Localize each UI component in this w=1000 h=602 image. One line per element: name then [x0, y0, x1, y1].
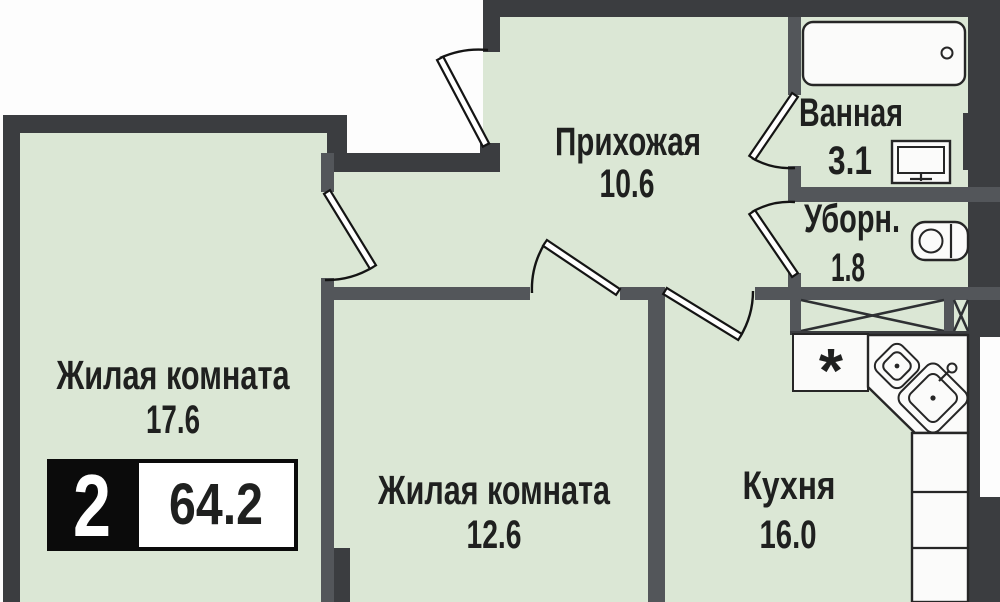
wall-bathroom-left-mid: [788, 166, 801, 202]
wall-toilet-left-lower: [788, 273, 801, 300]
wall-hall-bottom-b: [620, 287, 648, 300]
room-name: Ванная: [799, 91, 903, 135]
wall-bathroom-chunk: [963, 113, 1000, 170]
room-area: 10.6: [600, 162, 655, 206]
wall-top: [483, 0, 1000, 17]
badge-rooms-count: 2: [73, 456, 111, 555]
outside-area: [347, 0, 483, 153]
wall-room1-right-upper: [321, 153, 334, 192]
floor-plan-page: * Прихожая 10.6 Ванная 3.1 Уборн. 1.8: [0, 0, 1000, 602]
floor-plan-svg: * Прихожая 10.6 Ванная 3.1 Уборн. 1.8: [0, 0, 1000, 602]
stove-symbol: *: [819, 337, 844, 406]
wall-left: [3, 115, 20, 602]
room-area: 1.8: [831, 246, 865, 290]
wall-right: [968, 0, 1000, 602]
counter-divider: [944, 300, 954, 331]
faucet-knob: [948, 364, 957, 373]
wall-kitchen-stub: [790, 300, 801, 335]
room-area: 17.6: [146, 398, 200, 442]
wall-room2-kitchen: [648, 287, 665, 602]
room-name: Уборн.: [804, 197, 900, 241]
room-area: 12.6: [467, 513, 522, 557]
outside-area: [0, 0, 347, 115]
room-area: 16.0: [760, 513, 817, 557]
wall-room1-right-lower: [321, 278, 334, 602]
washbasin-icon: [892, 141, 950, 183]
room-name: Кухня: [743, 464, 836, 508]
apartment-badge: 2 64.2: [47, 456, 298, 555]
wall-notch-band: [327, 153, 500, 172]
room-name: Жилая комната: [56, 352, 291, 398]
room-name: Прихожая: [555, 120, 701, 164]
bathtub-icon: [803, 22, 965, 85]
wall-bathroom-left-upper: [788, 17, 801, 95]
wall-hall-left-upper: [483, 0, 500, 52]
toilet-icon: [912, 222, 968, 260]
room-area: 3.1: [828, 139, 872, 183]
wall-niche: [980, 337, 1000, 497]
wall-hall-bottom-a: [321, 287, 530, 300]
room-name: Жилая комната: [377, 467, 611, 513]
wall-room1-top: [3, 115, 347, 133]
badge-total-area: 64.2: [169, 472, 263, 537]
kitchen-counter-column: [912, 433, 968, 602]
